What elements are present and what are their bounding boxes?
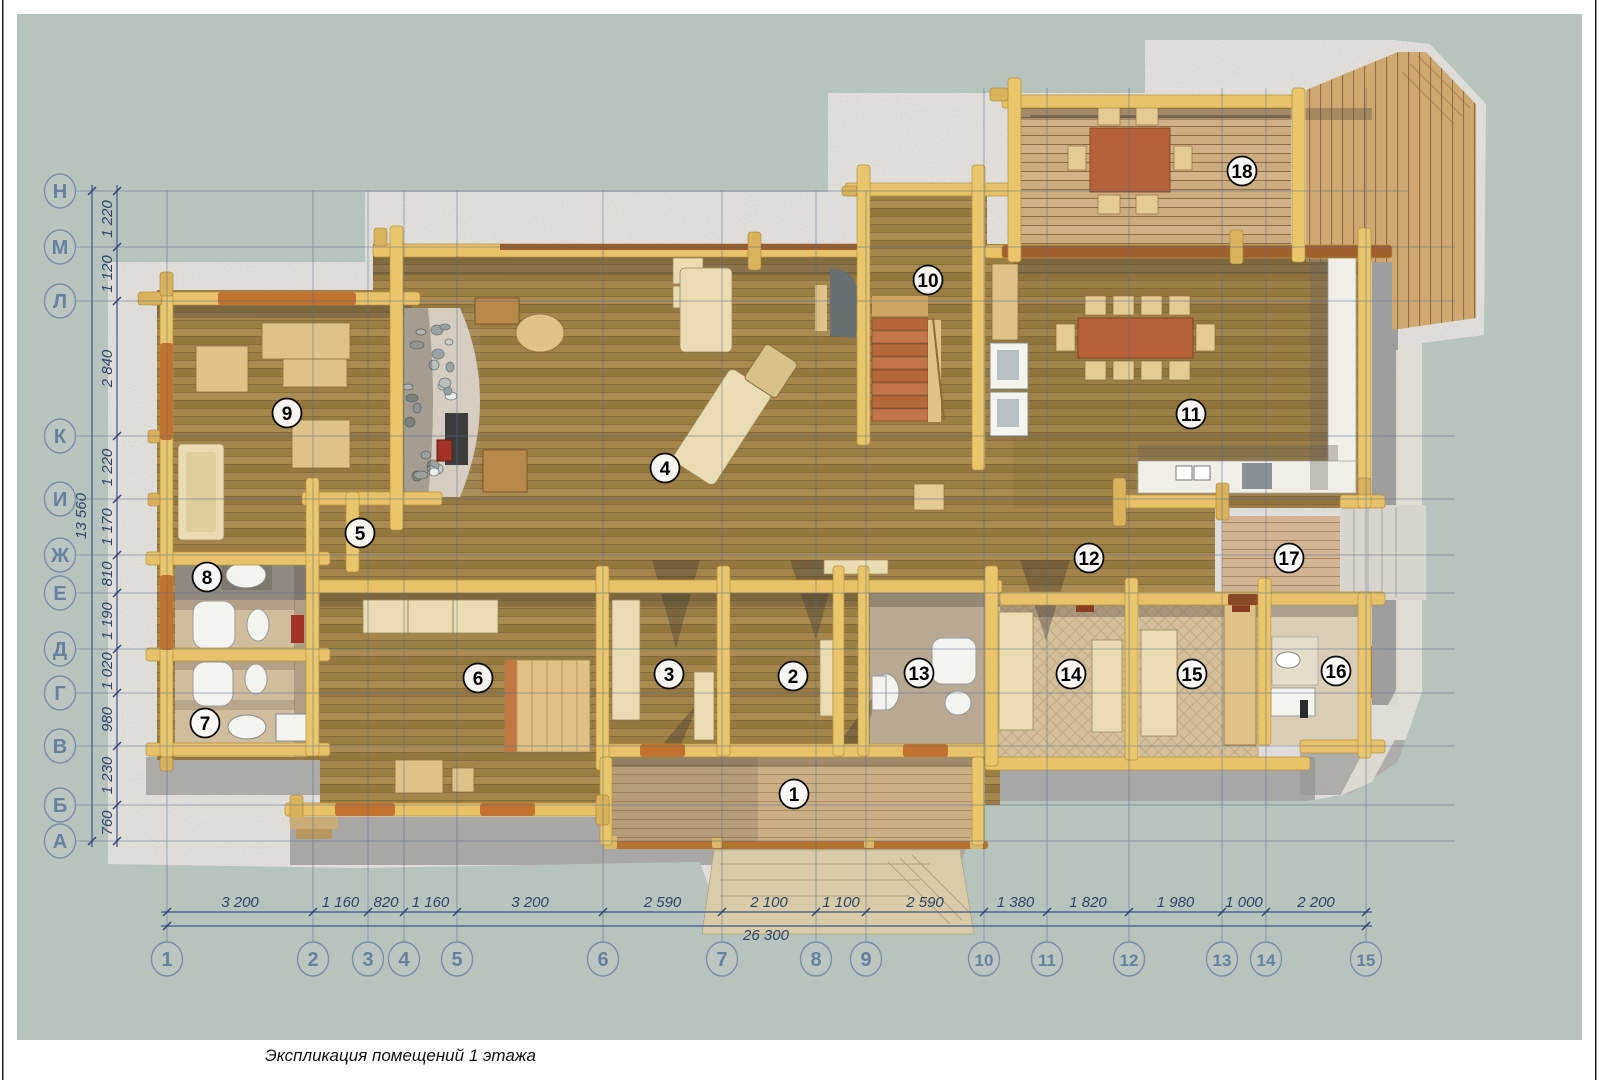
svg-text:Е: Е	[53, 583, 66, 605]
svg-text:14: 14	[1257, 951, 1276, 970]
svg-text:Ж: Ж	[50, 545, 70, 567]
svg-text:760: 760	[99, 810, 116, 836]
svg-text:17: 17	[1278, 549, 1299, 570]
svg-text:1 380: 1 380	[997, 894, 1035, 911]
svg-text:11: 11	[1181, 405, 1202, 426]
svg-text:Л: Л	[53, 291, 67, 313]
svg-text:1 160: 1 160	[412, 894, 450, 911]
svg-text:9: 9	[282, 404, 293, 425]
svg-text:7: 7	[716, 949, 727, 971]
svg-text:1 000: 1 000	[1225, 894, 1263, 911]
svg-text:14: 14	[1060, 665, 1082, 686]
svg-text:13: 13	[908, 664, 929, 685]
svg-text:6: 6	[597, 949, 608, 971]
svg-text:1 120: 1 120	[99, 255, 116, 293]
svg-text:7: 7	[200, 714, 211, 735]
svg-text:2 100: 2 100	[749, 894, 788, 911]
svg-text:3: 3	[362, 949, 373, 971]
svg-text:1 220: 1 220	[99, 200, 116, 238]
svg-text:9: 9	[860, 949, 871, 971]
svg-text:2 200: 2 200	[1296, 894, 1335, 911]
svg-text:В: В	[53, 736, 67, 758]
svg-text:2 840: 2 840	[99, 349, 116, 388]
svg-text:Г: Г	[54, 683, 65, 705]
svg-text:8: 8	[810, 949, 821, 971]
svg-text:3 200: 3 200	[221, 894, 259, 911]
svg-text:4: 4	[398, 949, 410, 971]
svg-text:А: А	[53, 831, 67, 853]
svg-text:11: 11	[1038, 951, 1056, 970]
svg-text:1: 1	[789, 785, 800, 806]
svg-text:1: 1	[161, 949, 172, 971]
svg-text:2 590: 2 590	[643, 894, 682, 911]
svg-text:Н: Н	[53, 181, 67, 203]
svg-text:13: 13	[1213, 951, 1232, 970]
svg-text:1 170: 1 170	[99, 508, 116, 546]
svg-text:810: 810	[99, 561, 116, 587]
svg-text:10: 10	[975, 951, 994, 970]
svg-text:И: И	[53, 489, 67, 511]
svg-text:4: 4	[660, 459, 671, 480]
svg-text:10: 10	[917, 271, 938, 292]
svg-text:3 200: 3 200	[511, 894, 549, 911]
svg-text:1 230: 1 230	[99, 756, 116, 794]
svg-text:8: 8	[202, 568, 213, 589]
svg-text:К: К	[54, 426, 67, 448]
svg-text:Д: Д	[53, 639, 67, 661]
svg-text:980: 980	[99, 706, 116, 732]
svg-text:26 300: 26 300	[742, 927, 790, 944]
svg-text:5: 5	[355, 524, 366, 545]
svg-text:15: 15	[1181, 665, 1203, 686]
svg-text:1 190: 1 190	[99, 602, 116, 640]
svg-text:1 100: 1 100	[822, 894, 860, 911]
svg-text:12: 12	[1078, 549, 1099, 570]
svg-text:16: 16	[1325, 662, 1346, 683]
svg-text:1 220: 1 220	[99, 448, 116, 486]
svg-text:18: 18	[1231, 162, 1252, 183]
svg-text:М: М	[52, 237, 69, 259]
svg-text:15: 15	[1357, 951, 1376, 970]
svg-text:3: 3	[664, 665, 675, 686]
svg-text:Б: Б	[53, 795, 67, 817]
svg-text:1 020: 1 020	[99, 652, 116, 690]
svg-text:1 980: 1 980	[1157, 894, 1195, 911]
svg-text:1 160: 1 160	[322, 894, 360, 911]
svg-text:820: 820	[373, 894, 399, 911]
svg-text:Экспликация помещений 1 этажа: Экспликация помещений 1 этажа	[265, 1046, 536, 1065]
svg-text:1 820: 1 820	[1069, 894, 1107, 911]
svg-text:2: 2	[788, 667, 799, 688]
svg-text:6: 6	[473, 669, 484, 690]
svg-text:12: 12	[1120, 951, 1139, 970]
svg-text:2 590: 2 590	[905, 894, 944, 911]
svg-text:2: 2	[307, 949, 318, 971]
svg-text:5: 5	[451, 949, 462, 971]
